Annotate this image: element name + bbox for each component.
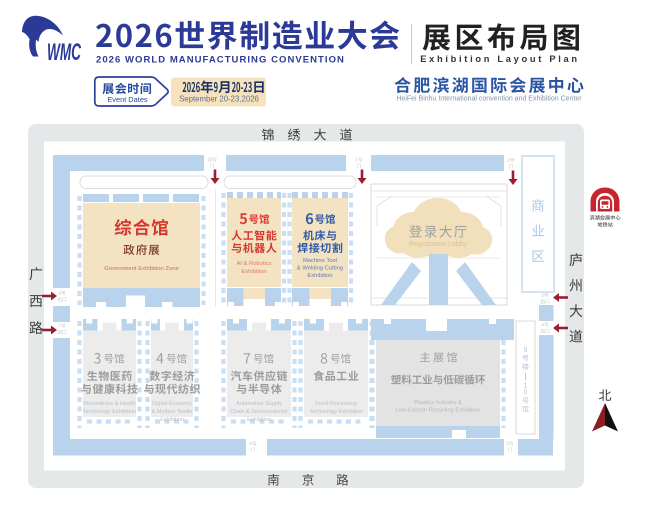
svg-text:Government Exhibition Zone: Government Exhibition Zone [104, 266, 179, 272]
svg-text:Plastics Industry &: Plastics Industry & [414, 400, 462, 406]
svg-text:Automotive Supply: Automotive Supply [236, 401, 282, 407]
svg-text:Chain & Semiconductor: Chain & Semiconductor [230, 409, 288, 415]
svg-text:Event Dates: Event Dates [107, 95, 148, 104]
svg-text:Digital Economy: Digital Economy [152, 401, 192, 407]
svg-text:Exhibition: Exhibition [307, 273, 332, 279]
svg-text:2026 WORLD MANUFACTURING CONVE: 2026 WORLD MANUFACTURING CONVENTION [96, 55, 345, 66]
svg-text:Registration Lobby: Registration Lobby [409, 241, 468, 248]
svg-text:Exhibition Layout Plan: Exhibition Layout Plan [420, 54, 580, 64]
svg-text:Technology Exhibition: Technology Exhibition [309, 409, 362, 415]
svg-text:& Modern Textile: & Modern Textile [152, 409, 193, 415]
svg-text:Food Processing: Food Processing [315, 401, 356, 407]
svg-text:& Welding Cutting: & Welding Cutting [297, 266, 343, 272]
svg-text:Exhibition: Exhibition [241, 269, 266, 275]
svg-text:Low-Carbon Recycling Exhibitio: Low-Carbon Recycling Exhibition [395, 408, 480, 414]
svg-text:Exhibition: Exhibition [160, 417, 184, 423]
svg-text:WMC: WMC [47, 39, 81, 66]
svg-text:HeiFei Binhu International con: HeiFei Binhu International convention an… [396, 96, 582, 103]
svg-text:September 20-23,2026: September 20-23,2026 [179, 95, 259, 104]
svg-text:Biomedicine & Health: Biomedicine & Health [83, 401, 136, 407]
svg-text:Machine Tool: Machine Tool [303, 258, 337, 264]
svg-text:Exhibition: Exhibition [247, 417, 271, 423]
svg-text:Technology Exhibition: Technology Exhibition [83, 409, 136, 415]
svg-text:AI & Robotics: AI & Robotics [236, 261, 271, 267]
